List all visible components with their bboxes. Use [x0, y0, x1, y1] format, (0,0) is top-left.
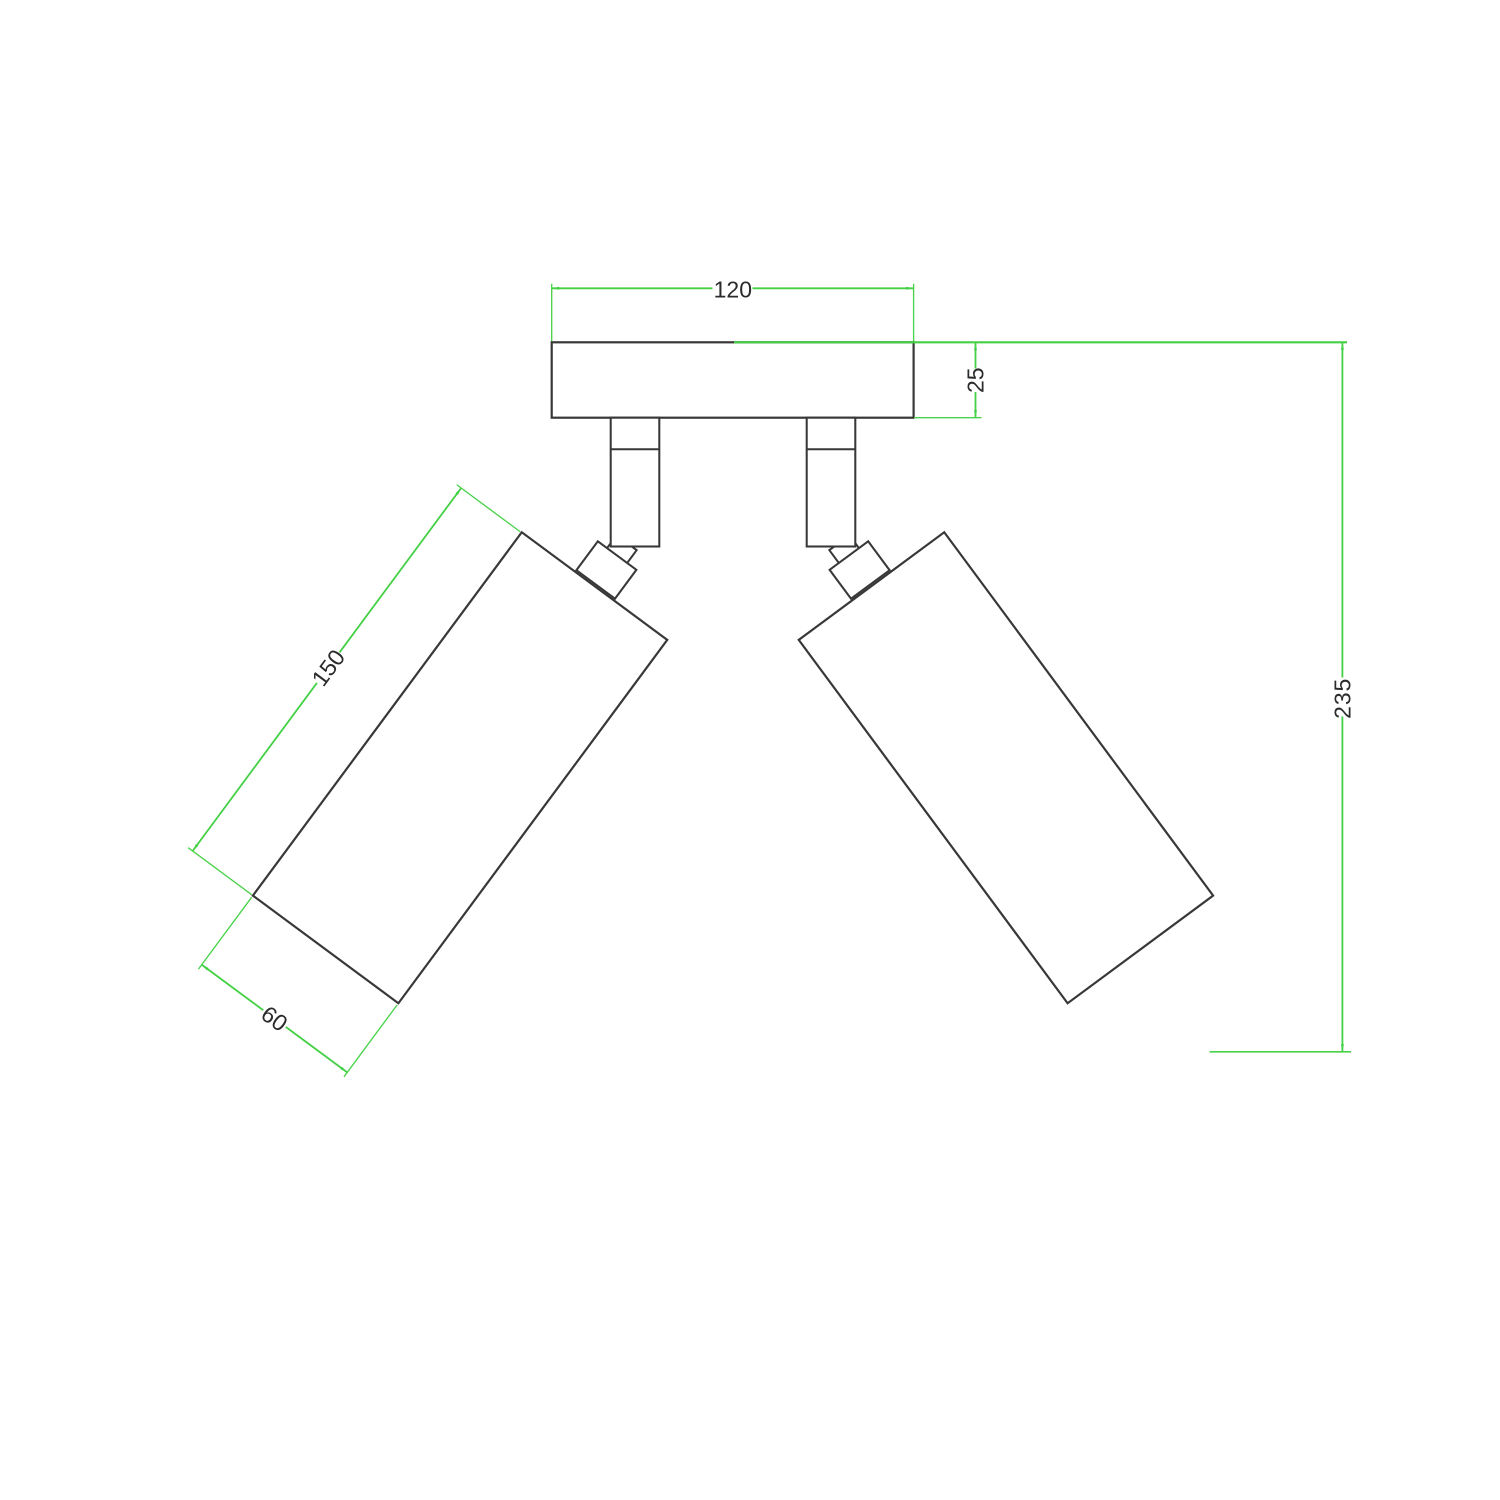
- svg-text:120: 120: [714, 276, 752, 302]
- svg-text:25: 25: [963, 367, 989, 393]
- svg-text:235: 235: [1329, 678, 1355, 719]
